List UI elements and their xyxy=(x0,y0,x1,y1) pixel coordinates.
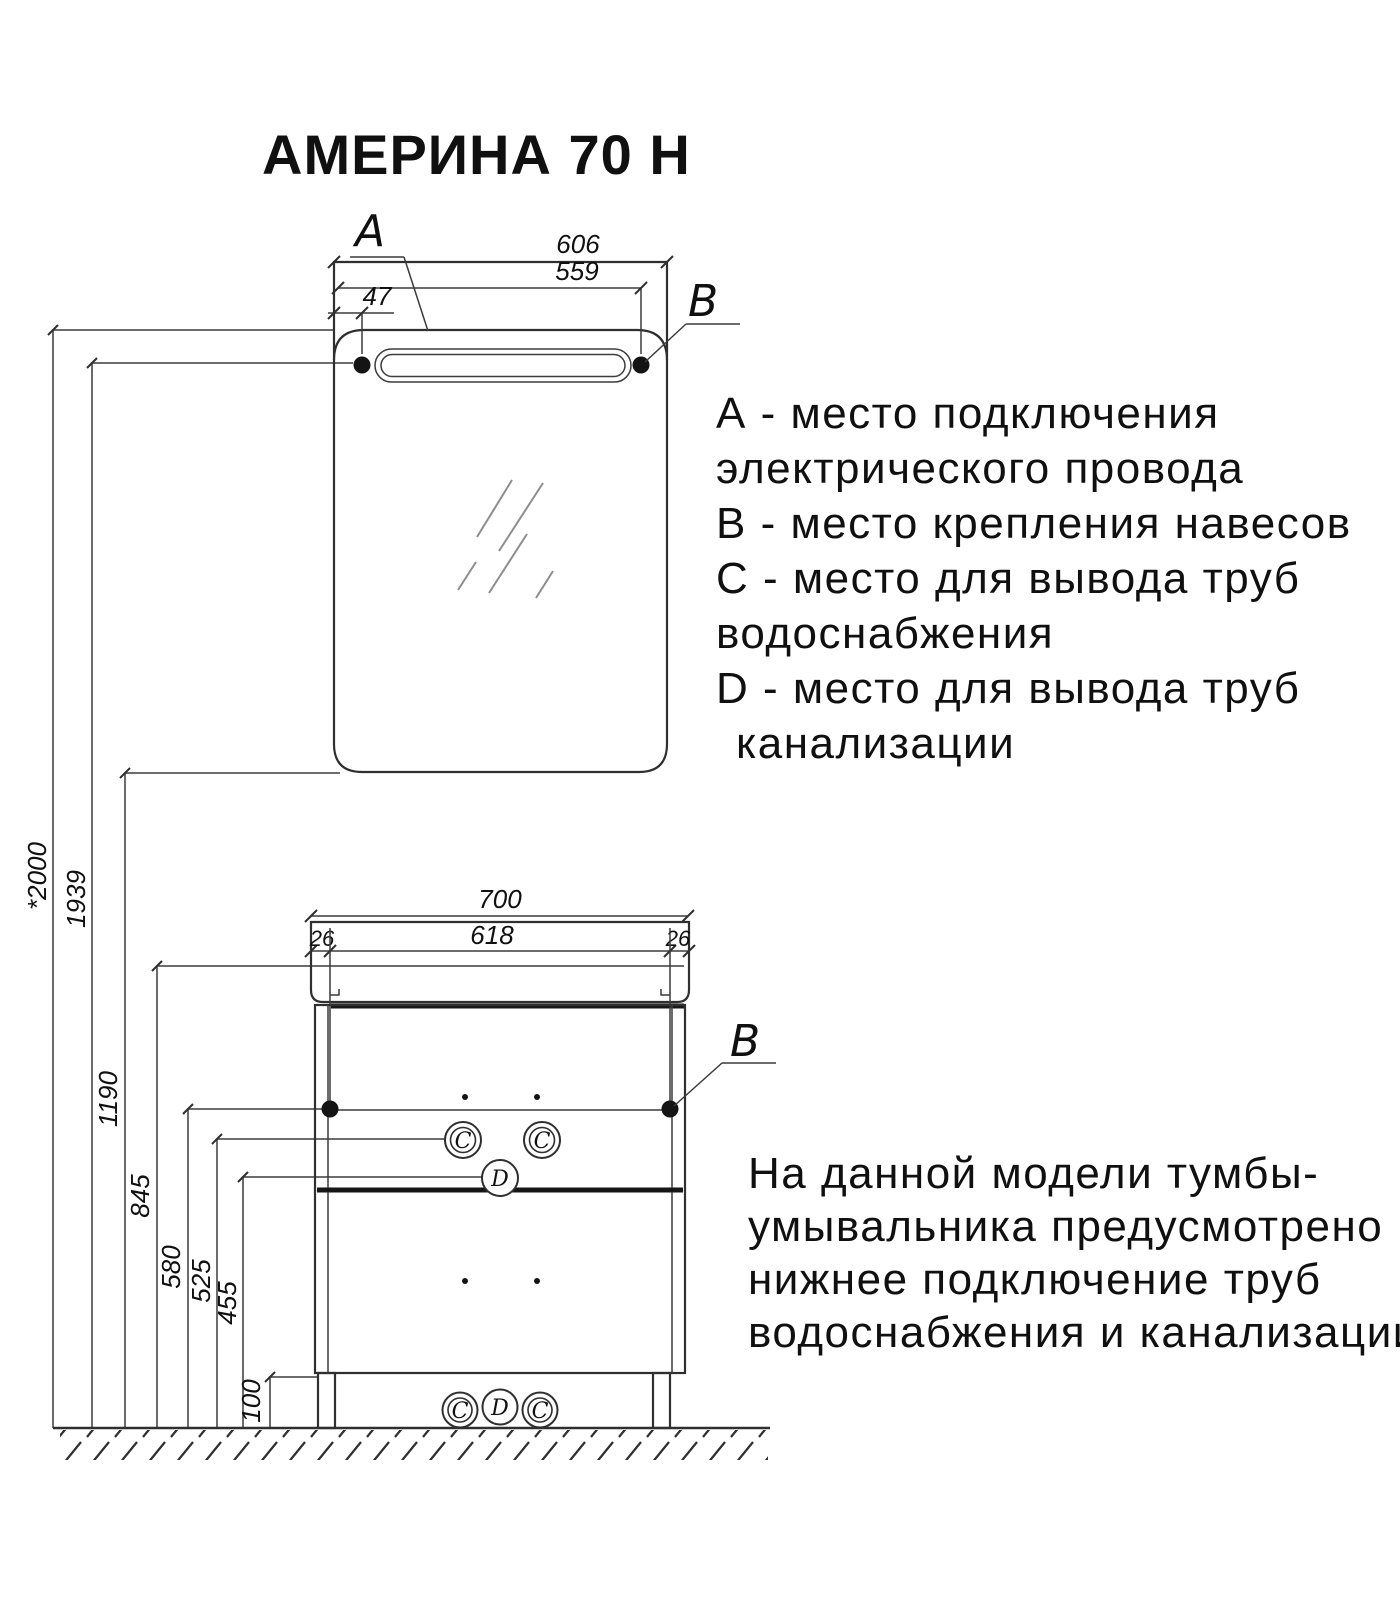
cabinet-label-b: B xyxy=(674,1016,776,1106)
legend-line: А - место подключения xyxy=(716,389,1220,438)
legend-block: А - место подключения электрического про… xyxy=(716,389,1352,768)
light-fixture-inner xyxy=(381,355,625,377)
drawer-dot xyxy=(462,1094,468,1100)
mirror-shine-icon xyxy=(458,480,553,598)
height-hangers-label: 580 xyxy=(156,1245,186,1289)
legend-line: электрического провода xyxy=(716,444,1244,493)
note-line: водоснабжения и канализации xyxy=(748,1308,1400,1357)
mirror-label-b: B xyxy=(645,276,740,362)
legend-line: D - место для вывода труб xyxy=(716,664,1300,713)
cabinet-hanger-marker-left xyxy=(322,1101,339,1118)
cabinet-label-b-text: B xyxy=(730,1016,760,1067)
cabinet-leg-right xyxy=(653,1373,670,1428)
bottom-port-letter: C xyxy=(532,1399,549,1424)
height-mirror-bottom-label: 1190 xyxy=(93,1071,123,1127)
power-point-marker-a xyxy=(354,357,371,374)
cabinet-leg-left xyxy=(318,1373,335,1428)
water-port-right-letter: C xyxy=(534,1129,551,1154)
height-light-label: 1939 xyxy=(61,870,91,928)
legend-line: С - место для вывода труб xyxy=(716,554,1300,603)
mirror-unit: 606 559 47 A B xyxy=(328,206,740,772)
note-line: нижнее подключение труб xyxy=(748,1255,1322,1304)
hanger-point-marker-b xyxy=(633,357,650,374)
ground-hatch-icon xyxy=(60,1430,768,1460)
water-port-left: C xyxy=(445,1122,481,1158)
water-port-right: C xyxy=(524,1122,560,1158)
height-mirror-top-label: *2000 xyxy=(22,841,52,909)
cabinet-hanger-marker-right xyxy=(662,1101,679,1118)
height-dimensions: *2000 1939 1190 845 580 525 455 100 xyxy=(22,325,684,1428)
cabinet-side-offset-right-value: 26 xyxy=(665,926,691,951)
height-drain-label: 455 xyxy=(212,1281,242,1325)
height-plinth-label: 100 xyxy=(236,1379,266,1423)
bottom-ports: C D C xyxy=(443,1390,558,1428)
label-b-text: B xyxy=(688,276,718,327)
legend-line: водоснабжения xyxy=(716,609,1054,658)
page-title: АМЕРИНА 70 Н xyxy=(262,123,691,186)
bottom-port-letter: C xyxy=(452,1399,469,1424)
ground xyxy=(53,1428,770,1460)
note-line: На данной модели тумбы- xyxy=(748,1149,1319,1198)
cabinet-mount-span-dimension: 618 26 26 xyxy=(305,920,695,1108)
legend-line: В - место крепления навесов xyxy=(716,499,1352,548)
bottom-port-letter: D xyxy=(490,1396,509,1421)
water-port-left-letter: C xyxy=(455,1129,472,1154)
drain-port: D xyxy=(482,1160,518,1196)
cabinet-width-dimension: 700 xyxy=(305,884,694,922)
mirror-width-value: 606 xyxy=(556,229,600,259)
mirror-power-offset-value: 47 xyxy=(363,281,393,311)
note-line: умывальника предусмотрено xyxy=(748,1202,1383,1251)
mirror-hanger-offset-value: 559 xyxy=(555,256,598,286)
cabinet-width-value: 700 xyxy=(478,884,522,914)
drawer-dot xyxy=(534,1278,540,1284)
mirror-frame xyxy=(334,262,667,772)
drawer-dot xyxy=(462,1278,468,1284)
technical-drawing-page: АМЕРИНА 70 Н *2000 1939 1190 845 580 525… xyxy=(0,0,1400,1600)
label-a-text: A xyxy=(352,206,385,257)
height-countertop-label: 845 xyxy=(125,1174,155,1218)
cabinet-mount-span-value: 618 xyxy=(470,920,514,950)
note-block: На данной модели тумбы- умывальника пред… xyxy=(748,1149,1400,1357)
drain-port-letter: D xyxy=(490,1167,509,1192)
cabinet-side-offset-left-value: 26 xyxy=(309,926,335,951)
drawing-canvas: АМЕРИНА 70 Н *2000 1939 1190 845 580 525… xyxy=(0,0,1400,1600)
drawer-dot xyxy=(534,1094,540,1100)
legend-line: канализации xyxy=(736,719,1015,768)
